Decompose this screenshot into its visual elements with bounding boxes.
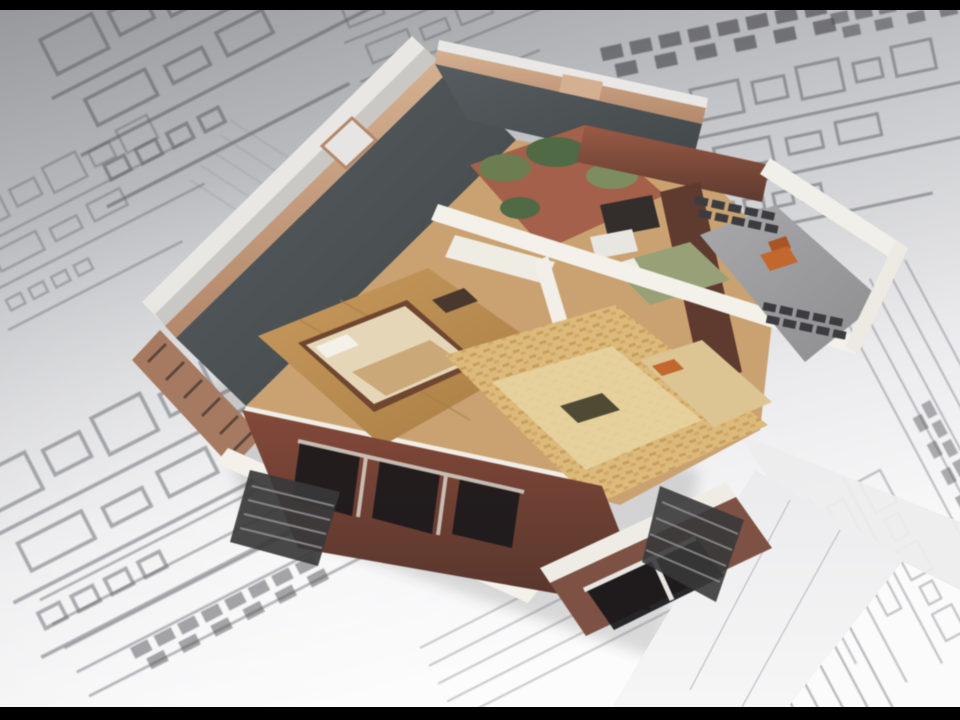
- plant: [479, 154, 531, 182]
- render-canvas: [0, 0, 960, 720]
- plant: [526, 137, 586, 167]
- letterbox-bottom: [0, 707, 960, 720]
- letterbox-top: [0, 0, 960, 10]
- video-frame: [0, 0, 960, 720]
- plant: [500, 197, 540, 219]
